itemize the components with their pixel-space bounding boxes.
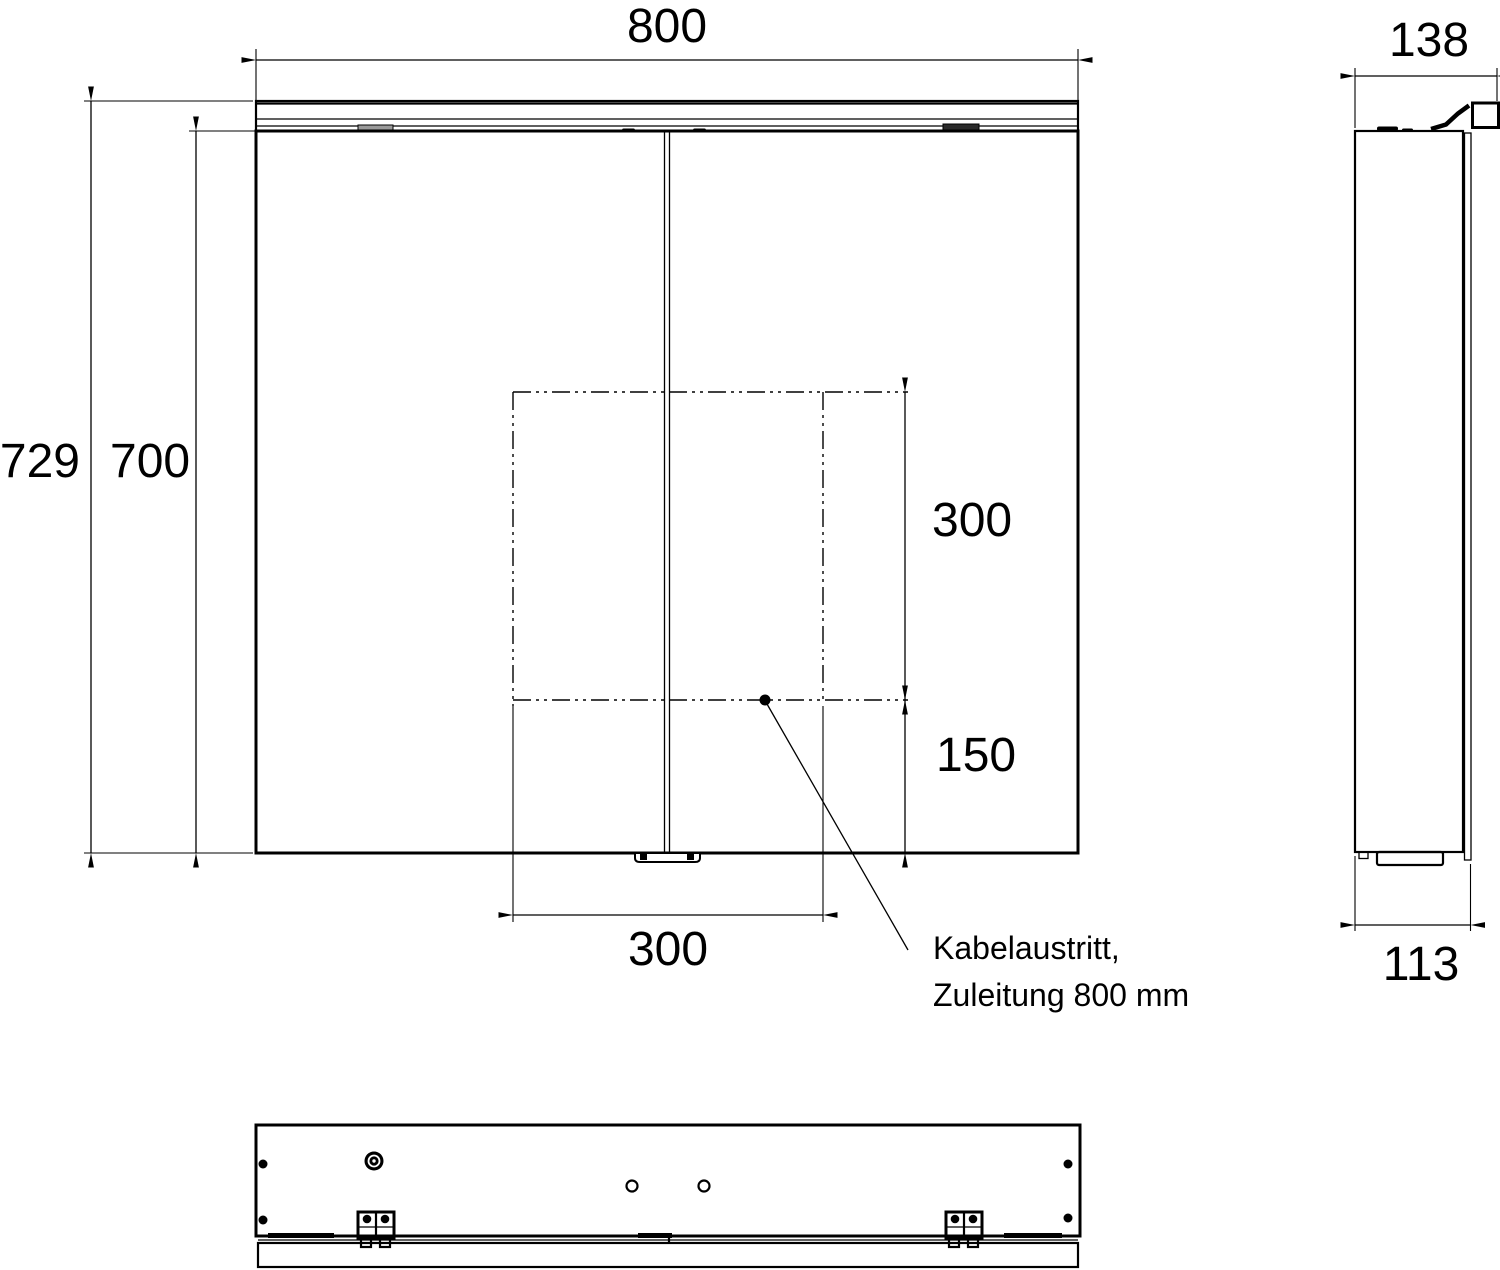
mounting-hole-right	[699, 1181, 710, 1192]
side-light-box	[1377, 852, 1443, 865]
cable-socket	[365, 1152, 384, 1171]
dimension-side-depth-body: 113	[1351, 941, 1491, 989]
callout-line-1: Kabelaustritt,	[933, 925, 1189, 972]
side-body	[1355, 131, 1463, 852]
side-door-panel	[1465, 133, 1472, 860]
clip-pin	[363, 1215, 372, 1224]
callout-leader-line	[767, 704, 908, 950]
door-top-hinge-mark-right	[693, 129, 706, 133]
door-handle-cap-left	[640, 854, 647, 860]
technical-drawing-page: 800 138 729 700 300 150 300 113 Kabelaus…	[0, 0, 1500, 1270]
hinge-clip-left	[358, 1212, 394, 1247]
door-handle-cap-right	[687, 854, 694, 860]
dimension-cutout-offset-bottom: 150	[936, 732, 1016, 780]
front-dimensions	[84, 49, 1078, 922]
mounting-hole-left	[627, 1181, 638, 1192]
screw-dot	[259, 1160, 268, 1169]
callout-line-2: Zuleitung 800 mm	[933, 972, 1189, 1019]
door-top-hinge-mark-left	[622, 129, 635, 133]
bottom-edge-segment-center	[638, 1233, 672, 1238]
dimension-front-height-total: 729	[0, 438, 80, 486]
cutout-dashed-box	[513, 392, 908, 706]
cable-outlet-dot	[760, 695, 771, 706]
dimension-cutout-width: 300	[598, 926, 738, 974]
dimension-side-depth-total: 138	[1354, 17, 1500, 65]
clip-pin	[969, 1215, 978, 1224]
dimension-front-width: 800	[592, 3, 742, 51]
screw-dot	[1064, 1160, 1073, 1169]
side-top-gasket-right	[1402, 129, 1413, 132]
clip-pin	[381, 1215, 390, 1224]
clip-pin	[951, 1215, 960, 1224]
dimension-front-height-doors: 700	[110, 438, 190, 486]
side-view-drawing	[1355, 68, 1499, 931]
mounting-bracket-block	[1473, 103, 1499, 128]
screw-dot	[259, 1216, 268, 1225]
dimension-cutout-height: 300	[932, 497, 1012, 545]
hinge-clip-right	[946, 1212, 982, 1247]
bottom-edge-segment-left	[268, 1233, 334, 1238]
bottom-view-drawing	[256, 1125, 1080, 1267]
drawing-canvas	[0, 0, 1500, 1270]
bottom-edge-segment-right	[1004, 1233, 1062, 1238]
cable-outlet-callout: Kabelaustritt, Zuleitung 800 mm	[933, 925, 1189, 1019]
socket-center	[372, 1159, 375, 1162]
mounting-bracket-arm	[1431, 106, 1469, 130]
screw-dot	[1064, 1214, 1073, 1223]
side-top-gasket-left	[1377, 127, 1398, 132]
